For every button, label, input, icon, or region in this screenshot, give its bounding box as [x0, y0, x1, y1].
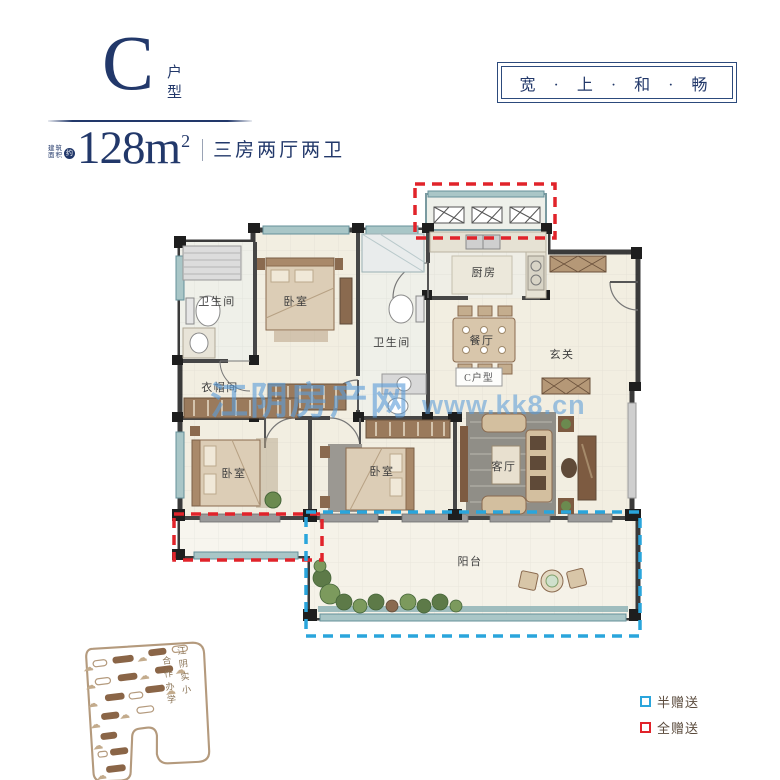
sink-icon	[190, 333, 208, 353]
room-label-balcony: 阳台	[458, 554, 483, 568]
floorplan-flyer: C 户型 建筑 面积 约 128m 2 三房两厅两卫 宽 · 上 · 和 · 畅…	[0, 0, 780, 780]
area-divider	[202, 139, 203, 161]
room-label-living: 客厅	[492, 459, 517, 473]
tree-cloud-icon: ☁	[92, 738, 105, 752]
tree-cloud-icon: ☁	[87, 696, 100, 710]
full-gift-label: 全赠送	[657, 718, 699, 737]
area-mini-label: 建筑 面积	[48, 145, 63, 159]
equipment-platform	[426, 191, 546, 230]
site-sketch-drawing: ☁ ☁ ☁ ☁ ☁ ☁ ☁ ☁ ☁ ☁ ☁	[68, 627, 236, 780]
layout-description: 三房两厅两卫	[213, 135, 345, 162]
washer-icon	[397, 377, 411, 391]
desk-icon	[578, 436, 596, 500]
plant-icon	[265, 492, 281, 508]
area-mini-line2: 面积	[48, 152, 63, 159]
room-label-bedroom2: 卧室	[222, 466, 247, 480]
half-gift-label: 半赠送	[657, 692, 699, 711]
room-label-bathroom2: 卫生间	[373, 335, 411, 349]
unit-type-label: 户型	[163, 64, 184, 104]
room-label-bedroom3: 卧室	[370, 464, 395, 478]
toilet-icon	[186, 298, 194, 324]
room-label-dining: 餐厅	[470, 333, 495, 347]
gift-legend: 半赠送 全赠送	[640, 692, 699, 737]
area-mini-line1: 建筑	[48, 145, 63, 152]
room-label-kitchen: 厨房	[472, 266, 497, 279]
area-exponent: 2	[181, 136, 190, 146]
slogan-text: 宽 · 上 · 和 · 畅	[501, 66, 733, 99]
tree-cloud-icon: ☁	[95, 768, 108, 780]
room-label-foyer: 玄关	[550, 347, 575, 361]
wardrobe-icon	[366, 420, 450, 438]
ac-unit-icon	[434, 207, 540, 223]
cloakroom-wardrobe	[184, 398, 298, 418]
tree-cloud-icon: ☁	[119, 708, 132, 722]
tree-cloud-icon: ☁	[84, 678, 97, 692]
floorplan-drawing: C户型 卫生间 卧室 卫生间 厨房 餐厅 玄关 衣帽间 卧室 卧室 客厅 阳台	[170, 178, 650, 646]
full-gift-swatch	[640, 722, 651, 733]
toilet-icon	[389, 295, 413, 323]
chair-icon	[561, 458, 577, 478]
approx-badge: 约	[64, 148, 75, 159]
area-row: 建筑 面积 约 128m 2 三房两厅两卫	[48, 128, 345, 168]
sink-icon	[388, 398, 408, 414]
area-value: 128m	[77, 128, 180, 168]
room-label-cloakroom: 衣帽间	[201, 380, 239, 394]
slogan-box: 宽 · 上 · 和 · 畅	[497, 62, 737, 103]
room-label-bathroom1: 卫生间	[198, 294, 236, 308]
unit-badge: C户型	[456, 368, 502, 386]
tree-cloud-icon: ☁	[138, 669, 151, 683]
wardrobe-icon	[184, 398, 298, 418]
unit-badge-label: C户型	[464, 371, 494, 384]
legend-row-full-gift: 全赠送	[640, 718, 699, 737]
half-gift-swatch	[640, 696, 651, 707]
legend-row-half-gift: 半赠送	[640, 692, 699, 711]
tree-cloud-icon: ☁	[136, 650, 149, 664]
site-plan-sketch: ☁ ☁ ☁ ☁ ☁ ☁ ☁ ☁ ☁ ☁ ☁ 江阴实小 合作办学	[68, 627, 236, 780]
room-label-bedroom1: 卧室	[284, 294, 309, 308]
tree-cloud-icon: ☁	[82, 660, 95, 674]
unit-letter: C	[102, 24, 154, 102]
tree-cloud-icon: ☁	[89, 717, 102, 731]
